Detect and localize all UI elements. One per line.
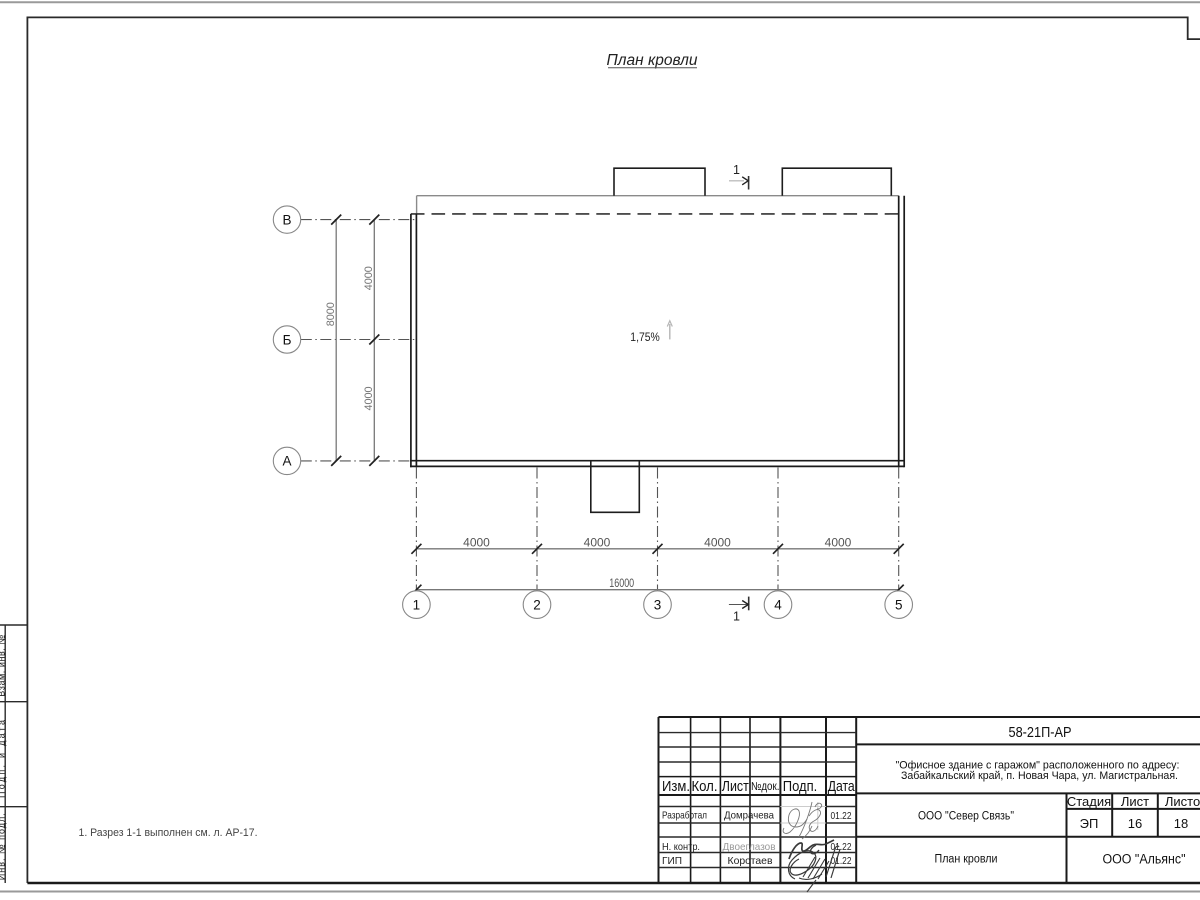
svg-text:4000: 4000	[363, 266, 375, 290]
svg-text:1: 1	[413, 598, 421, 613]
svg-text:16: 16	[1128, 816, 1142, 831]
svg-text:1: 1	[733, 163, 740, 177]
svg-text:Взам. инв. №: Взам. инв. №	[0, 634, 6, 696]
svg-text:Двоеглазов: Двоеглазов	[723, 841, 776, 853]
svg-text:План кровли: План кровли	[935, 854, 998, 866]
svg-text:Лист: Лист	[1121, 794, 1149, 809]
svg-text:Дата: Дата	[828, 778, 856, 795]
svg-text:4000: 4000	[463, 536, 490, 550]
svg-text:Подп.: Подп.	[783, 778, 818, 795]
svg-text:А: А	[282, 454, 291, 469]
svg-text:1. Разрез 1-1 выполнен см. л.: 1. Разрез 1-1 выполнен см. л. АР-17.	[79, 827, 258, 839]
svg-text:Листов: Листов	[1165, 794, 1200, 809]
svg-text:Н. контр.: Н. контр.	[662, 841, 700, 853]
svg-text:01.22: 01.22	[831, 810, 852, 822]
svg-text:Б: Б	[283, 332, 292, 347]
svg-text:01.22: 01.22	[831, 855, 852, 867]
svg-text:58-21П-АР: 58-21П-АР	[1009, 724, 1072, 741]
svg-text:Лист: Лист	[722, 778, 749, 795]
svg-text:1: 1	[733, 610, 740, 624]
svg-text:16000: 16000	[609, 576, 634, 590]
svg-text:1,75%: 1,75%	[630, 332, 660, 344]
svg-text:4: 4	[774, 598, 782, 613]
svg-text:3: 3	[654, 598, 662, 613]
svg-text:Забайкальский край, п. Новая Ч: Забайкальский край, п. Новая Чара, ул. М…	[901, 770, 1178, 782]
svg-text:В: В	[282, 212, 291, 227]
svg-text:Кол.: Кол.	[692, 778, 718, 795]
svg-text:№док.: №док.	[751, 781, 780, 793]
svg-text:Разработал: Разработал	[662, 810, 707, 822]
svg-text:ГИП: ГИП	[662, 855, 682, 867]
svg-text:4000: 4000	[363, 387, 375, 411]
svg-text:ООО "Север Связь": ООО "Север Связь"	[918, 811, 1014, 823]
svg-text:8000: 8000	[325, 302, 337, 326]
svg-text:Домрачева: Домрачева	[724, 810, 774, 822]
svg-text:Инв. № подл.: Инв. № подл.	[0, 813, 6, 880]
svg-text:5: 5	[895, 598, 903, 613]
svg-text:18: 18	[1174, 816, 1188, 831]
svg-text:ЭП: ЭП	[1080, 816, 1099, 831]
svg-text:Изм.: Изм.	[662, 778, 690, 795]
svg-text:Коротаев: Коротаев	[728, 855, 773, 867]
svg-text:Стадия: Стадия	[1067, 794, 1111, 809]
svg-text:2: 2	[533, 598, 541, 613]
svg-text:4000: 4000	[825, 536, 852, 550]
svg-text:4000: 4000	[584, 536, 611, 550]
svg-text:ООО "Альянс": ООО "Альянс"	[1103, 852, 1186, 867]
svg-text:План кровли: План кровли	[607, 52, 698, 69]
svg-text:4000: 4000	[704, 536, 731, 550]
